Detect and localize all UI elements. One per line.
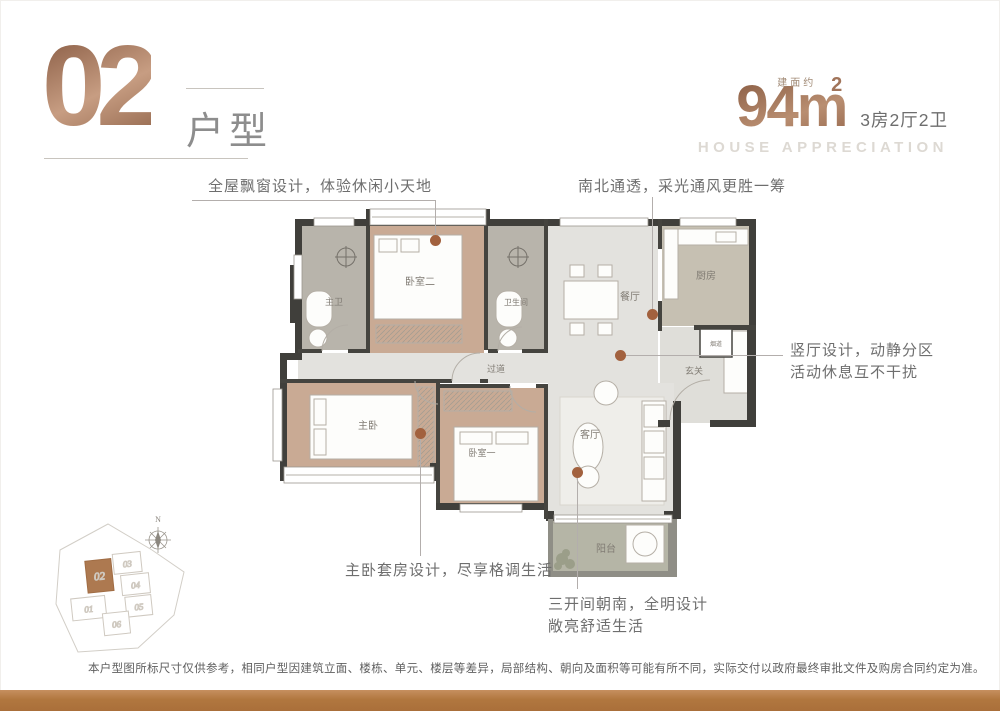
room-label-kitchen: 厨房 <box>696 269 716 282</box>
site-label-06: 06 <box>112 619 122 630</box>
leader-hall-h <box>625 355 783 356</box>
annotation-bay-window: 全屋飘窗设计，体验休闲小天地 <box>208 176 432 198</box>
leader-bay-h <box>192 200 435 201</box>
area-prefix-label: 建面约 <box>777 74 816 89</box>
area-superscript: 2 <box>831 74 842 97</box>
site-label-04: 04 <box>131 580 141 591</box>
site-label-02: 02 <box>93 570 106 583</box>
area-figure: 建面约 94m 2 <box>736 78 846 136</box>
annotation-north-south: 南北通透，采光通风更胜一筹 <box>578 176 786 198</box>
room-label-foyer: 玄关 <box>685 365 703 376</box>
annotation-south-line2: 敞亮舒适生活 <box>548 616 708 638</box>
area-header: 建面约 94m 2 3房2厅2卫 HOUSE APPRECIATION <box>698 78 948 156</box>
site-label-01: 01 <box>84 604 94 615</box>
room-label-balcony: 阳台 <box>596 542 616 555</box>
flyer-page: 02 户型 建面约 94m 2 3房2厅2卫 HOUSE APPRECIATIO… <box>0 0 1000 711</box>
leader-dot-south <box>572 467 583 478</box>
leader-dot-bay <box>430 235 441 246</box>
compass-north-label: N <box>155 515 161 524</box>
room-label-master-bath: 主卫 <box>325 296 343 307</box>
room-label-bedroom2: 卧室二 <box>405 275 435 288</box>
room-label-bathroom: 卫生间 <box>504 297 528 307</box>
layout-spec: 3房2厅2卫 <box>860 107 948 132</box>
leader-south-v <box>577 477 578 589</box>
leader-dot-ns <box>647 309 658 320</box>
annotation-south-line1: 三开间朝南，全明设计 <box>548 594 708 616</box>
bottom-accent-bar <box>0 690 1000 711</box>
unit-number: 02 <box>42 30 151 144</box>
header-rule-top <box>186 88 264 89</box>
annotation-south: 三开间朝南，全明设计 敞亮舒适生活 <box>548 594 708 638</box>
leader-ns-v <box>652 197 653 310</box>
tagline-en: HOUSE APPRECIATION <box>698 139 948 156</box>
room-label-bedroom1: 卧室一 <box>468 447 495 458</box>
site-label-03: 03 <box>122 558 132 569</box>
site-plan: 02 03 04 01 05 06 N <box>48 510 198 660</box>
room-label-living: 客厅 <box>580 428 600 441</box>
floor-plan: 主卫 卧室二 卫生间 餐厅 厨房 烟道 玄关 过道 主卧 卧室一 客厅 阳台 <box>270 205 775 590</box>
annotation-hall-line1: 竖厅设计，动静分区 <box>790 340 934 362</box>
annotation-hall: 竖厅设计，动静分区 活动休息互不干扰 <box>790 340 934 384</box>
unit-type-label: 户型 <box>186 100 272 155</box>
leader-bay-v <box>435 200 436 236</box>
annotation-master-suite: 主卧套房设计，尽享格调生活 <box>345 560 553 582</box>
site-label-05: 05 <box>134 601 144 612</box>
leader-dot-master <box>415 428 426 439</box>
leader-dot-hall <box>615 350 626 361</box>
leader-master-v <box>420 438 421 556</box>
disclaimer-text: 本户型图所标尺寸仅供参考，相同户型因建筑立面、楼栋、单元、楼层等差异，局部结构、… <box>88 660 985 676</box>
compass-icon <box>145 527 171 553</box>
room-label-dining: 餐厅 <box>620 290 640 303</box>
room-label-corridor: 过道 <box>487 363 505 374</box>
room-label-master: 主卧 <box>358 419 378 432</box>
room-label-flue: 烟道 <box>710 340 722 348</box>
annotation-hall-line2: 活动休息互不干扰 <box>790 362 934 384</box>
site-blocks: 02 03 04 01 05 06 <box>66 551 154 639</box>
header-rule-bottom <box>44 158 248 159</box>
